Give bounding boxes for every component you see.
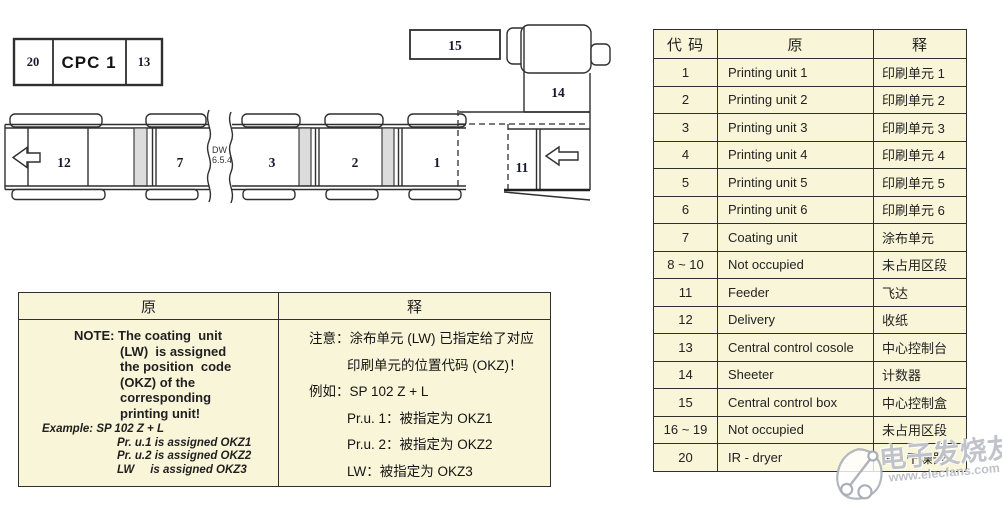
note-source-cell: NOTE: The coating unit (LW) is assigned … bbox=[19, 320, 279, 487]
press-schematic: 20 CPC 1 13 12 7 DW bbox=[0, 0, 650, 230]
press-middle-section: 3 2 1 bbox=[232, 114, 466, 200]
machine-foot bbox=[146, 190, 198, 200]
feeder-label: 11 bbox=[516, 160, 529, 175]
sheeter-head bbox=[521, 25, 591, 73]
break-symbol: DW 6.5.4 bbox=[208, 110, 233, 203]
code-table-header-row: 代 码 原 释 bbox=[654, 30, 967, 59]
table-row: 13Central control cosole中心控制台 bbox=[654, 334, 967, 362]
table-row: 1Printing unit 1印刷单元 1 bbox=[654, 59, 967, 87]
dw-reference-line1: DW bbox=[212, 145, 227, 155]
sheeter-label: 14 bbox=[551, 85, 565, 100]
cpc-title-label: CPC 1 bbox=[61, 53, 116, 72]
note-english-text: NOTE: The coating unit (LW) is assigned … bbox=[20, 321, 277, 421]
printing-unit1-label: 1 bbox=[434, 155, 441, 170]
note-table-body-row: NOTE: The coating unit (LW) is assigned … bbox=[19, 320, 551, 487]
table-row: 20IR - dryerIR - 干燥器 bbox=[654, 444, 967, 472]
table-row: 4Printing unit 4印刷单元 4 bbox=[654, 141, 967, 169]
table-row: 6Printing unit 6印刷单元 6 bbox=[654, 196, 967, 224]
paper-direction-arrow bbox=[546, 147, 578, 165]
table-row: 12Delivery收纸 bbox=[654, 306, 967, 334]
control-box-15: 15 bbox=[410, 30, 500, 59]
table-row: 8 ~ 10Not occupied未占用区段 bbox=[654, 251, 967, 279]
printing-unit3-label: 3 bbox=[269, 155, 276, 170]
table-row: 2Printing unit 2印刷单元 2 bbox=[654, 86, 967, 114]
manual-page: 20 CPC 1 13 12 7 DW bbox=[0, 0, 1002, 505]
note-table: 原 释 NOTE: The coating unit (LW) is assig… bbox=[18, 292, 551, 487]
control-box-label: 15 bbox=[448, 38, 462, 53]
delivery-unit-label: 12 bbox=[57, 155, 71, 170]
cpc-slot-20-label: 20 bbox=[27, 55, 40, 69]
machine-foot bbox=[12, 190, 105, 200]
unit-divider-band bbox=[299, 128, 311, 186]
sheeter-14: 14 bbox=[507, 25, 610, 112]
table-row: 3Printing unit 3印刷单元 3 bbox=[654, 114, 967, 142]
coating-unit-label: 7 bbox=[177, 155, 184, 170]
note-example-text: Example: SP 102 Z + L Pr. u.1 is assigne… bbox=[20, 423, 277, 477]
pile-ramp bbox=[504, 192, 590, 200]
table-row: 16 ~ 19Not occupied未占用区段 bbox=[654, 416, 967, 444]
unit-divider-band bbox=[382, 128, 394, 186]
sheeter-knob bbox=[591, 44, 610, 65]
code-table: 代 码 原 释 1Printing unit 1印刷单元 1 2Printing… bbox=[653, 29, 967, 472]
cpc-panel: 20 CPC 1 13 bbox=[14, 39, 162, 85]
table-row: 14Sheeter计数器 bbox=[654, 361, 967, 389]
table-row: 5Printing unit 5印刷单元 5 bbox=[654, 169, 967, 197]
note-translation-cell: 注意：涂布单元 (LW) 已指定给了对应 印刷单元的位置代码 (OKZ)！ 例如… bbox=[279, 320, 551, 487]
cpc-slot-13-label: 13 bbox=[138, 55, 151, 69]
machine-foot bbox=[409, 190, 461, 200]
note-header-source: 原 bbox=[19, 293, 279, 320]
machine-foot bbox=[326, 190, 378, 200]
table-row: 11Feeder飞达 bbox=[654, 279, 967, 307]
source-header: 原 bbox=[718, 30, 874, 59]
feeder-11: 11 bbox=[458, 110, 590, 200]
note-table-header-row: 原 释 bbox=[19, 293, 551, 320]
paper-direction-arrow bbox=[13, 148, 40, 168]
table-row: 15Central control box中心控制盒 bbox=[654, 389, 967, 417]
unit-divider-band bbox=[134, 128, 147, 186]
press-left-section: 12 7 bbox=[5, 114, 209, 200]
table-row: 7Coating unit涂布单元 bbox=[654, 224, 967, 252]
note-header-translation: 释 bbox=[279, 293, 551, 320]
printing-unit2-label: 2 bbox=[352, 155, 359, 170]
machine-foot bbox=[243, 190, 295, 200]
code-header: 代 码 bbox=[654, 30, 718, 59]
translation-header: 释 bbox=[874, 30, 967, 59]
note-chinese-text: 注意：涂布单元 (LW) 已指定给了对应 印刷单元的位置代码 (OKZ)！ 例如… bbox=[280, 321, 549, 485]
dw-reference-line2: 6.5.4 bbox=[212, 155, 232, 165]
